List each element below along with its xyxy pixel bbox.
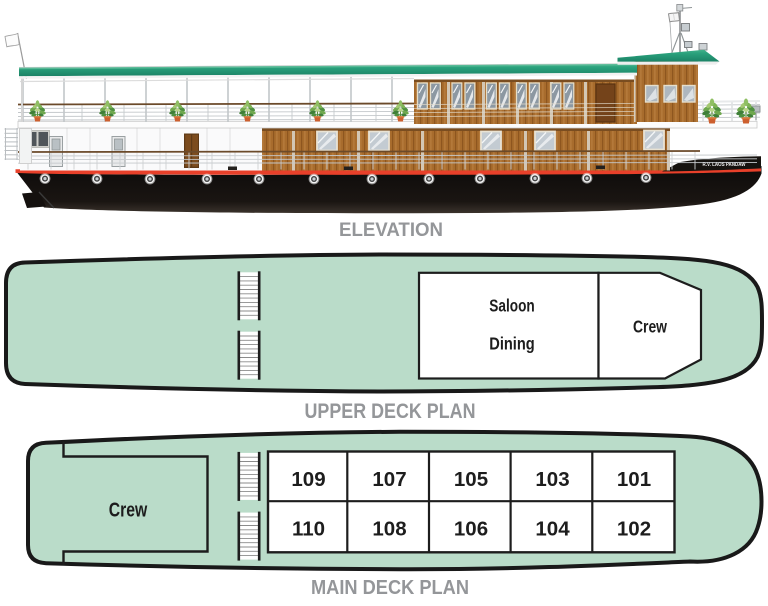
- svg-text:109: 109: [291, 468, 325, 491]
- svg-text:ELEVATION: ELEVATION: [339, 219, 443, 241]
- svg-text:MAIN DECK PLAN: MAIN DECK PLAN: [311, 577, 469, 599]
- svg-text:108: 108: [372, 518, 406, 541]
- svg-text:UPPER DECK PLAN: UPPER DECK PLAN: [305, 399, 476, 423]
- svg-text:Crew: Crew: [109, 499, 148, 522]
- svg-text:110: 110: [292, 518, 325, 541]
- svg-text:107: 107: [372, 468, 406, 491]
- svg-text:Dining: Dining: [489, 334, 535, 354]
- svg-text:Crew: Crew: [633, 316, 667, 336]
- svg-text:102: 102: [617, 518, 651, 541]
- svg-text:105: 105: [454, 468, 488, 491]
- svg-text:Saloon: Saloon: [489, 295, 535, 315]
- svg-text:104: 104: [535, 518, 570, 541]
- svg-text:101: 101: [617, 468, 651, 491]
- svg-text:106: 106: [454, 518, 488, 541]
- svg-text:103: 103: [535, 468, 569, 491]
